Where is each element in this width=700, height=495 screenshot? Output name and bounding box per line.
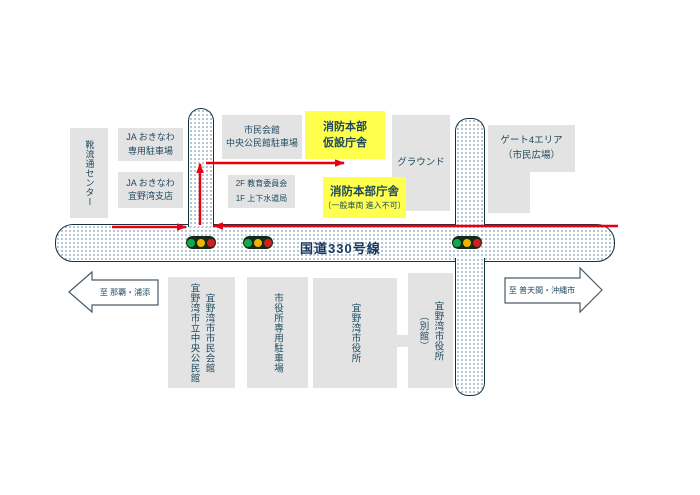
traffic-light-icon [243,236,273,249]
building-gate4-area-leg [488,172,530,213]
building-cityhall: 宜野湾市役所 [313,278,397,388]
gate4-line2: （市民広場） [500,149,562,163]
building-shoe-center: 靴流通センター [70,128,108,218]
right-side-road-lower [455,258,485,396]
ja-branch-line2: 宜野湾支店 [126,190,175,204]
building-fire-hq-main: 消防本部庁舎 （一般車両 進入不可） [323,177,406,218]
fire-hq-line2: （一般車両 進入不可） [323,200,405,211]
annex-suffix-column: （別館） [416,301,431,361]
signal-yellow-dot [463,239,471,247]
civic-hall-parking-line2: 中央公民館駐車場 [226,137,298,151]
gate4-line1: ゲート4エリア [500,134,562,148]
building-ja-parking-label: JA おきなわ 専用駐車場 [126,131,175,158]
building-gate4-label: ゲート4エリア （市民広場） [500,134,562,163]
building-shoe-center-label: 靴流通センター [82,140,97,207]
building-ground-label: グラウンド [397,156,445,170]
building-city-offices-floors: 2F 教育委員会 1F 上下水道局 [228,175,295,208]
traffic-light-icon [452,236,482,249]
signal-red-dot [473,239,481,247]
building-cityhall-label: 宜野湾市役所 [348,303,363,363]
route-330-label: 国道330号線 [300,238,381,257]
building-fire-hq-temporary: 消防本部 仮設庁舎 [305,111,385,159]
building-cityhall-parking: 市役所専用駐車場 [247,277,308,388]
civic-hall-column: 宜野湾市市民会館 [202,283,217,383]
central-community-center-column: 宜野湾市立中央公民館 [187,283,202,383]
signal-green-dot [244,239,252,247]
to-futenma-label: 至 普天間・沖縄市 [504,285,580,296]
signal-green-dot [187,239,195,247]
floors-line1: 2F 教育委員会 [236,177,288,191]
signal-green-dot [453,239,461,247]
building-civic-hall-labels: 宜野湾市市民会館 宜野湾市立中央公民館 [187,283,217,383]
fire-temp-line2: 仮設庁舎 [323,135,367,152]
right-side-road-upper [455,118,485,227]
building-civic-hall: 宜野湾市市民会館 宜野湾市立中央公民館 [168,277,235,388]
annex-name-column: 宜野湾市役所 [431,301,446,361]
left-side-road [188,108,214,227]
building-cityhall-parking-label: 市役所専用駐車場 [270,293,285,373]
traffic-light-icon [186,236,216,249]
building-ja-parking: JA おきなわ 専用駐車場 [118,128,183,161]
building-civic-hall-parking-label: 市民会館 中央公民館駐車場 [226,124,298,151]
fire-hq-line1: 消防本部庁舎 [323,184,405,200]
ja-branch-line1: JA おきなわ [126,177,175,191]
cityhall-annex-connector [397,335,408,347]
signal-red-dot [264,239,272,247]
building-civic-hall-parking: 市民会館 中央公民館駐車場 [222,115,302,159]
building-fire-hq-temporary-label: 消防本部 仮設庁舎 [323,119,367,152]
building-gate4-area: ゲート4エリア （市民広場） [488,125,575,172]
building-city-offices-label: 2F 教育委員会 1F 上下水道局 [236,177,288,206]
civic-hall-parking-line1: 市民会館 [226,124,298,138]
signal-red-dot [207,239,215,247]
fire-temp-line1: 消防本部 [323,119,367,136]
building-cityhall-annex: 宜野湾市役所 （別館） [408,273,453,388]
building-ja-branch: JA おきなわ 宜野湾支店 [118,172,183,208]
signal-yellow-dot [197,239,205,247]
to-naha-label: 至 那覇・浦添 [92,287,158,298]
building-fire-hq-main-label: 消防本部庁舎 （一般車両 進入不可） [323,184,405,211]
route-map: 靴流通センター JA おきなわ 専用駐車場 JA おきなわ 宜野湾支店 市民会館… [0,0,700,495]
building-cityhall-annex-labels: 宜野湾市役所 （別館） [416,301,446,361]
signal-yellow-dot [254,239,262,247]
building-ja-branch-label: JA おきなわ 宜野湾支店 [126,177,175,204]
floors-line2: 1F 上下水道局 [236,192,288,206]
ja-parking-line2: 専用駐車場 [126,145,175,159]
ja-parking-line1: JA おきなわ [126,131,175,145]
